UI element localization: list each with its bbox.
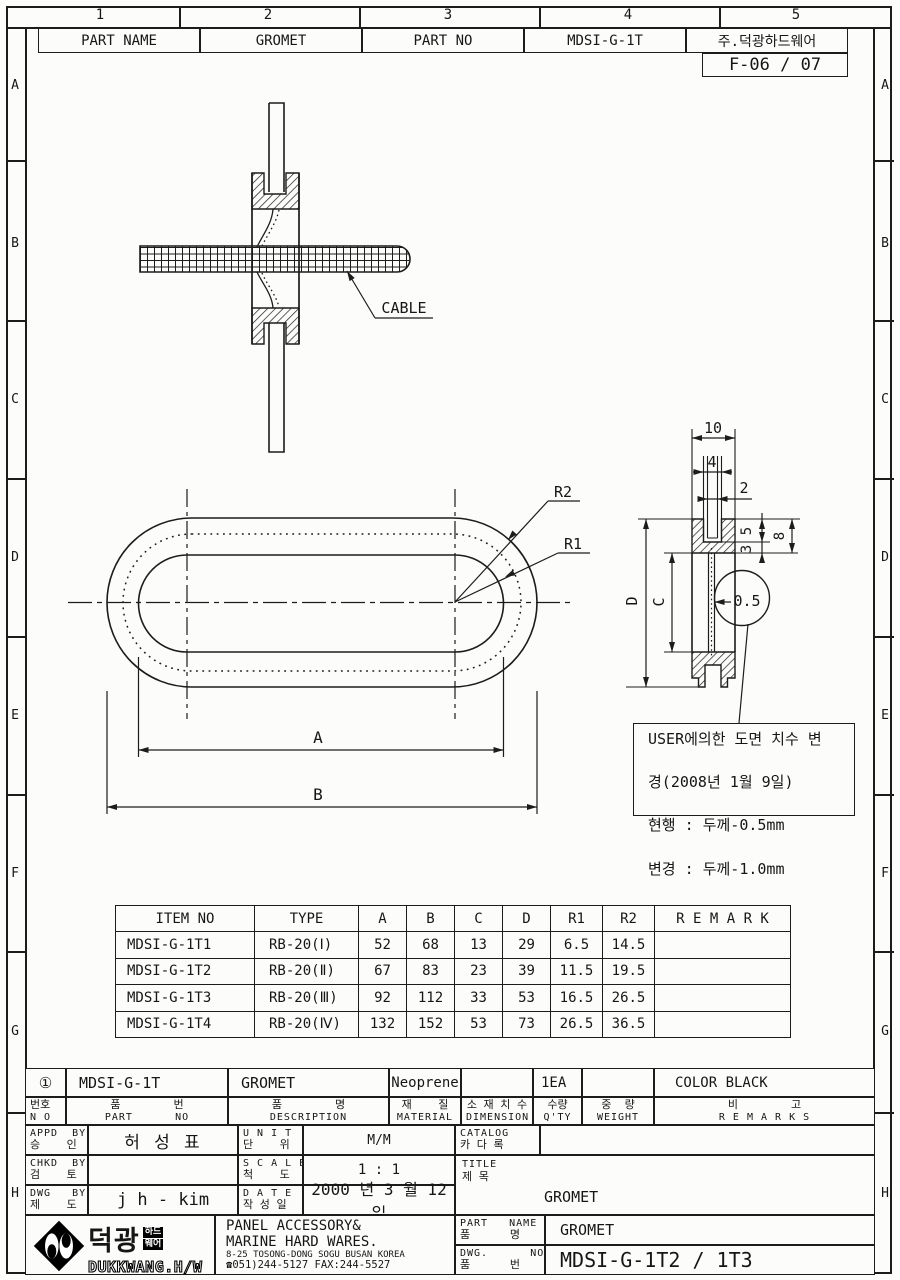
cell: [655, 1011, 791, 1037]
col-header: R2: [603, 906, 655, 932]
cable-section-view: CABLE: [140, 103, 433, 452]
obround-inner: [139, 555, 504, 652]
cell: RB-20(Ⅰ): [255, 932, 359, 958]
cell: 36.5: [603, 1011, 655, 1037]
col-header: ITEM NO: [116, 906, 255, 932]
cable-label: CABLE: [381, 299, 426, 317]
tb-partname-label: PART NAME품 명: [455, 1215, 545, 1245]
cell: 39: [503, 958, 551, 984]
col-header: R1: [551, 906, 603, 932]
tb-scale-label: S C A L E척 도: [238, 1155, 303, 1185]
tb-material: Neoprene: [389, 1068, 461, 1097]
spec-table: ITEM NO TYPE A B C D R1 R2 R E M A R K M…: [115, 905, 791, 1038]
cell: 6.5: [551, 932, 603, 958]
plan-view: R2 R1 A B: [68, 483, 590, 814]
drawing-sheet: 1 2 3 4 5 A B C D E F G H A B C D E F G …: [0, 0, 900, 1280]
tb-item-no: ①: [25, 1068, 66, 1097]
tb-label-part-no: 품 번PART NO: [66, 1097, 228, 1125]
cell: 16.5: [551, 985, 603, 1011]
cell: 83: [407, 958, 455, 984]
tb-label-remarks: 비 고R E M A R K S: [654, 1097, 875, 1125]
tb-date-value: 2000 년 3 월 12 일: [303, 1185, 455, 1215]
tb-chkd-value: [88, 1155, 238, 1185]
col-header: B: [407, 906, 455, 932]
tb-weight: [582, 1068, 654, 1097]
company-logo-cell: 덕광 하드 웨어 DUKKWANG.H/W: [25, 1215, 215, 1275]
cell: 11.5: [551, 958, 603, 984]
dim-C: C: [650, 597, 668, 606]
dim-b-label: B: [313, 785, 323, 804]
tb-catalog-label: CATALOG카 다 록: [455, 1125, 540, 1155]
section-top-flange: [692, 519, 735, 553]
side-section-view: 10 4 2 5 3 8 D: [623, 419, 800, 723]
cell: 26.5: [551, 1011, 603, 1037]
dim-3: 3: [739, 545, 755, 553]
cell: [655, 958, 791, 984]
tb-title-label: TITLE제 목: [458, 1158, 501, 1184]
revision-note: USER에의한 도면 치수 변 경(2008년 1월 9일) 현행 : 두께-0…: [633, 723, 855, 816]
cell: 112: [407, 985, 455, 1011]
tb-catalog-value: [540, 1125, 875, 1155]
tb-unit-label: U N I T단 위: [238, 1125, 303, 1155]
cell: 53: [503, 985, 551, 1011]
col-header: TYPE: [255, 906, 359, 932]
cell: 53: [455, 1011, 503, 1037]
spec-header-row: ITEM NO TYPE A B C D R1 R2 R E M A R K: [116, 906, 791, 932]
tb-unit-value: M/M: [303, 1125, 455, 1155]
company-line-1: PANEL ACCESSORY&: [226, 1219, 454, 1235]
cell: MDSI-G-1T4: [116, 1011, 255, 1037]
company-line-2: MARINE HARD WARES.: [226, 1235, 454, 1251]
dim-8: 8: [772, 532, 788, 540]
logo-en: DUKKWANG.H/W: [88, 1258, 202, 1276]
note-line-4: 변경 : 두께-1.0mm: [648, 860, 784, 878]
tb-part-no: MDSI-G-1T: [66, 1068, 228, 1097]
tb-label-weight: 중 량WEIGHT: [582, 1097, 654, 1125]
cell: RB-20(Ⅱ): [255, 958, 359, 984]
cell: 23: [455, 958, 503, 984]
cell: [655, 985, 791, 1011]
tb-title-cell: TITLE제 목 GROMET: [455, 1155, 875, 1215]
cable: [140, 246, 410, 272]
tb-title-value: GROMET: [544, 1188, 598, 1206]
col-header: A: [359, 906, 407, 932]
cell: MDSI-G-1T1: [116, 932, 255, 958]
tb-dwgby-value: j h - kim: [88, 1185, 238, 1215]
cell: 73: [503, 1011, 551, 1037]
tb-appd-value: 허 성 표: [88, 1125, 238, 1155]
dim-0-5: 0.5: [733, 592, 760, 610]
table-row: MDSI-G-1T2 RB-20(Ⅱ) 67 83 23 39 11.5 19.…: [116, 958, 791, 984]
company-info-cell: PANEL ACCESSORY& MARINE HARD WARES. 8-25…: [215, 1215, 455, 1275]
tb-dwgby-label: DWG BY제 도: [25, 1185, 88, 1215]
dim-D: D: [623, 596, 641, 605]
table-row: MDSI-G-1T4 RB-20(Ⅳ) 132 152 53 73 26.5 3…: [116, 1011, 791, 1037]
tb-appd-label: APPD BY승 인: [25, 1125, 88, 1155]
cell: 132: [359, 1011, 407, 1037]
tb-label-qty: 수량Q'TY: [533, 1097, 582, 1125]
cell: 68: [407, 932, 455, 958]
tb-label-material: 재 질MATERIAL: [389, 1097, 461, 1125]
table-row: MDSI-G-1T3 RB-20(Ⅲ) 92 112 33 53 16.5 26…: [116, 985, 791, 1011]
dukkwang-logo-icon: [32, 1219, 86, 1273]
cell: 13: [455, 932, 503, 958]
cell: 14.5: [603, 932, 655, 958]
dim-a-label: A: [313, 728, 323, 747]
cell: MDSI-G-1T3: [116, 985, 255, 1011]
cell: RB-20(Ⅲ): [255, 985, 359, 1011]
tb-partname-value: GROMET: [545, 1215, 875, 1245]
hatched-top-flange: [252, 173, 299, 209]
cell: 152: [407, 1011, 455, 1037]
note-line-1: USER에의한 도면 치수 변: [648, 730, 822, 748]
cell: 92: [359, 985, 407, 1011]
logo-tag-1: 하드: [143, 1227, 164, 1238]
col-header: C: [455, 906, 503, 932]
note-line-3: 현행 : 두께-0.5mm: [648, 816, 784, 834]
hatched-bottom-flange: [252, 308, 299, 344]
section-bottom-flange: [692, 652, 735, 687]
tb-label-no: 번호N O: [25, 1097, 66, 1125]
cell: 19.5: [603, 958, 655, 984]
tb-label-dimension: 소 재 치 수DIMENSION: [461, 1097, 533, 1125]
tb-description: GROMET: [228, 1068, 389, 1097]
cell: 33: [455, 985, 503, 1011]
tb-dwgno-value: MDSI-G-1T2 / 1T3: [545, 1245, 875, 1275]
col-header: D: [503, 906, 551, 932]
tb-label-description: 품 명DESCRIPTION: [228, 1097, 389, 1125]
tb-dwgno-label: DWG. NO.품 번: [455, 1245, 545, 1275]
tb-date-label: D A T E작 성 일: [238, 1185, 303, 1215]
logo-tag-2: 웨어: [143, 1239, 164, 1250]
tb-qty: 1EA: [533, 1068, 582, 1097]
cell: 67: [359, 958, 407, 984]
cell: 52: [359, 932, 407, 958]
logo-kr: 덕광: [88, 1219, 140, 1258]
panel-lower: [269, 323, 284, 452]
cell: 26.5: [603, 985, 655, 1011]
cell: MDSI-G-1T2: [116, 958, 255, 984]
dim-10: 10: [704, 419, 722, 437]
tb-remarks: COLOR BLACK: [654, 1068, 875, 1097]
tb-chkd-label: CHKD BY검 토: [25, 1155, 88, 1185]
table-row: MDSI-G-1T1 RB-20(Ⅰ) 52 68 13 29 6.5 14.5: [116, 932, 791, 958]
col-header: R E M A R K: [655, 906, 791, 932]
r2-label: R2: [554, 483, 572, 501]
cell: RB-20(Ⅳ): [255, 1011, 359, 1037]
dim-4: 4: [707, 453, 716, 471]
company-line-4: ☎051)244-5127 FAX:244-5527: [226, 1260, 454, 1272]
r1-label: R1: [564, 535, 582, 553]
cell: 29: [503, 932, 551, 958]
dim-5: 5: [739, 527, 755, 535]
panel-upper: [269, 103, 284, 192]
cell: [655, 932, 791, 958]
tb-dimension: [461, 1068, 533, 1097]
note-line-2: 경(2008년 1월 9일): [648, 773, 794, 791]
dim-2: 2: [739, 479, 748, 497]
